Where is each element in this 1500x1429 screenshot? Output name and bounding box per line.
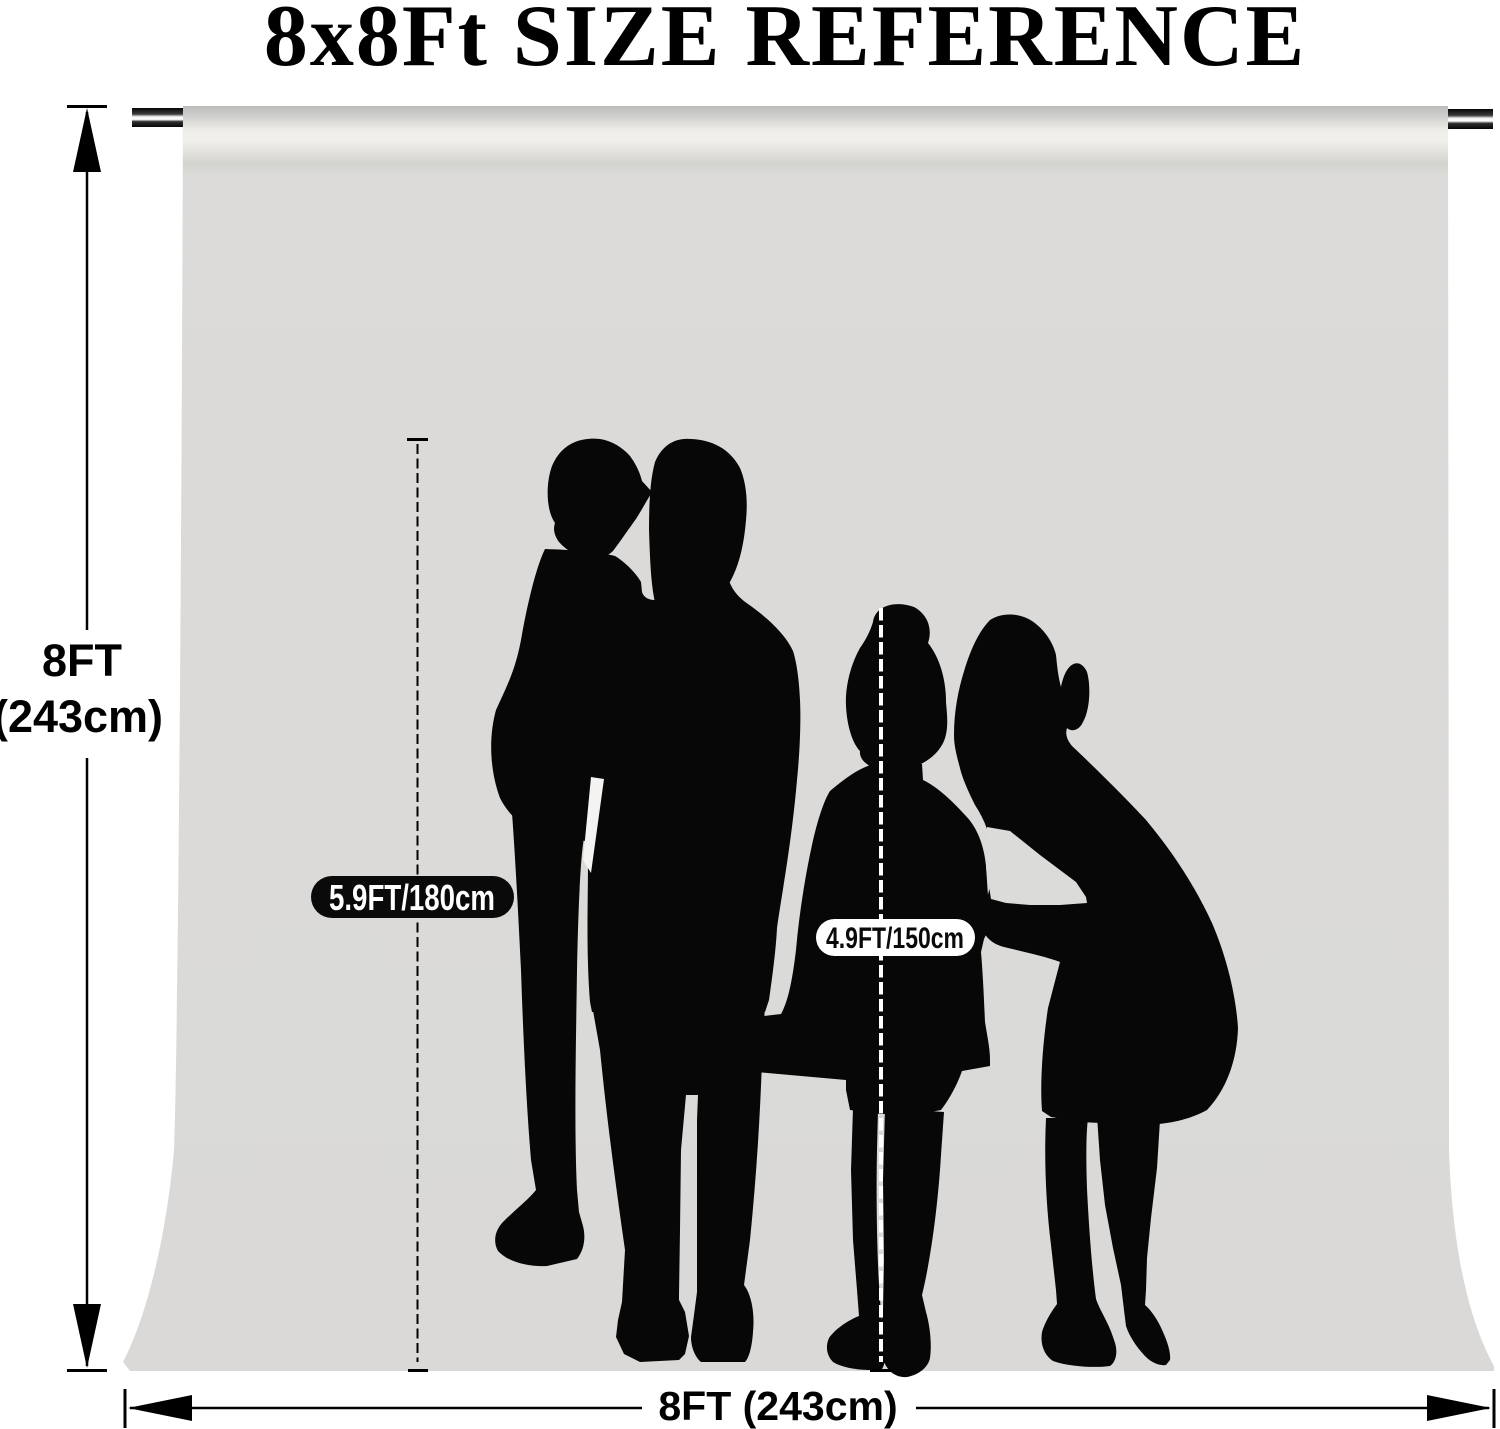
svg-text:4.9FT/150cm: 4.9FT/150cm <box>826 922 964 955</box>
svg-text:8x8Ft SIZE REFERENCE: 8x8Ft SIZE REFERENCE <box>264 0 1306 85</box>
svg-text:8FT: 8FT <box>42 635 122 686</box>
svg-text:8FT (243cm): 8FT (243cm) <box>658 1383 897 1429</box>
svg-text:5.9FT/180cm: 5.9FT/180cm <box>329 877 495 918</box>
svg-text:(243cm): (243cm) <box>0 691 163 742</box>
